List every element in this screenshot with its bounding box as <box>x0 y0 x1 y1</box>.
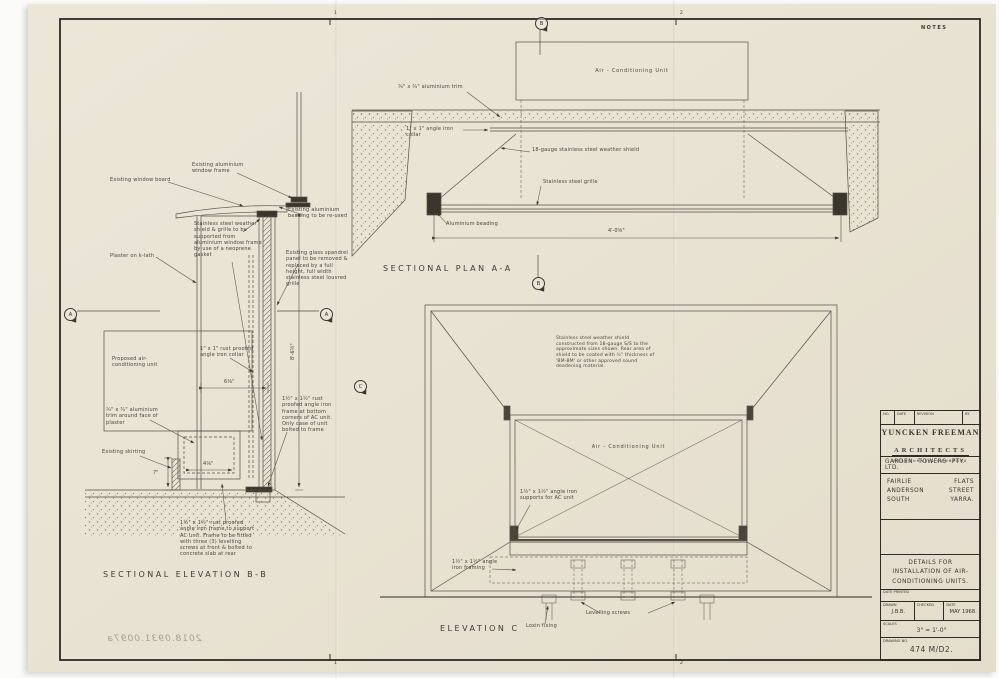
drawn-checked-date-row: DRAWNJ.B.B. CHECKED DATEMAY 1968. <box>881 602 980 621</box>
project-line: FLATS <box>954 479 974 485</box>
title-block: NO. DATE REVISION BY YUNCKEN FREEMAN ARC… <box>880 410 981 661</box>
border-tick-label: 1 <box>334 661 337 666</box>
dim-overall-height: 8'-6⅝" <box>290 343 296 360</box>
border-tick-label: 2 <box>680 661 683 666</box>
label-spandrel: Existing glass spandrel panel to be remo… <box>286 250 350 288</box>
catalogue-stamp: 2018.0931.0097a <box>84 634 224 644</box>
client-name: GARDEN TOWERS PTY. LTD. <box>881 457 980 474</box>
project-line: SOUTH <box>887 497 910 503</box>
drawing-number-row: DRAWING NO. 474 M/D2. <box>881 638 980 660</box>
label-plan-shield: 18-gauge stainless steel weather shield <box>532 147 662 153</box>
rev-col-no: NO. <box>881 411 895 424</box>
border-tick-label: 1 <box>334 11 337 16</box>
scales-label: SCALES <box>883 622 980 626</box>
label-angle-collar: 1" x 1" rust proofed angle iron collar <box>200 346 256 359</box>
section-marker-b-mid: B <box>532 277 545 290</box>
label-elevc-supports: 1½" x 1½" angle iron supports for AC uni… <box>520 489 578 502</box>
label-plan-ac-unit: Air - Conditioning Unit <box>516 68 748 74</box>
label-plan-collar: 1" x 1" angle iron collar <box>406 126 462 139</box>
title-sectional-plan-aa: SECTIONAL PLAN A-A <box>383 264 513 273</box>
project-line: ANDERSON <box>887 488 924 494</box>
date-printed-label: DATE PRINTED <box>881 590 980 602</box>
project-line: STREET <box>949 488 974 494</box>
date-label: DATE <box>946 603 980 607</box>
section-marker-a-right: A <box>320 308 333 321</box>
drawing-no-label: DRAWING NO. <box>883 639 980 643</box>
label-corner-angle: 1½" x 1½" rust proofed angle iron frame … <box>282 396 344 434</box>
section-marker-a-left: A <box>64 308 77 321</box>
label-weather-shield: Stainless steel weather shield & grille … <box>194 221 264 259</box>
label-proposed-unit: Proposed air-conditioning unit <box>112 356 168 369</box>
project-block: FAIRLIEFLATS ANDERSONSTREET SOUTHYARRA. <box>881 474 980 520</box>
revision-header-row: NO. DATE REVISION BY <box>881 411 980 425</box>
firm-name: YUNCKEN FREEMAN <box>881 428 980 437</box>
firm-block: YUNCKEN FREEMAN ARCHITECTS MELBOURNE & C… <box>881 425 980 457</box>
rev-col-date: DATE <box>895 411 915 424</box>
scales-row: SCALES 3" = 1'-0" <box>881 621 980 638</box>
drawing-no-value: 474 M/D2. <box>883 645 980 654</box>
scales-value: 3" = 1'-0" <box>883 627 980 634</box>
label-elevc-note: Stainless steel weather shield construct… <box>556 336 658 370</box>
section-marker-b-top: B <box>535 17 548 30</box>
label-skirting: Existing skirting <box>102 449 152 455</box>
title-elevation-c: ELEVATION C <box>440 624 520 633</box>
label-alum-trim: ¾" x ¾" aluminium trim around face of pl… <box>106 407 164 426</box>
label-plan-beading: Aluminium beading <box>446 221 516 227</box>
drawn-value: J.B.B. <box>883 609 914 615</box>
sectional-plan-aa-lines <box>352 30 880 256</box>
label-plan-grille: Stainless steel grille <box>543 179 623 185</box>
date-value: MAY 1968. <box>946 609 980 615</box>
scanned-drawing-sheet: NOTES 1 2 1 2 2018.0931.0097a A A C B B … <box>0 0 999 678</box>
label-support-frame: 1½" x 1½" rust proofed angle iron frame … <box>180 520 260 558</box>
label-elevc-loxin: Loxin fixing <box>526 623 570 629</box>
project-line: YARRA. <box>950 497 974 503</box>
firm-architects: ARCHITECTS <box>892 447 969 456</box>
checked-label: CHECKED <box>917 603 944 607</box>
dim-collar-width: 6⅛" <box>224 379 234 385</box>
label-elevc-levelling: Levelling screws <box>586 610 648 616</box>
drawn-label: DRAWN <box>883 603 914 607</box>
label-plan-trim: ¾" x ¾" aluminium trim <box>398 84 464 90</box>
border-tick-label: 2 <box>680 11 683 16</box>
project-line: FAIRLIE <box>887 479 912 485</box>
drawing-title: DETAILS FOR INSTALLATION OF AIR-CONDITIO… <box>881 554 980 590</box>
label-plaster: Plaster on k-lath <box>110 253 170 259</box>
label-window-frame: Existing aluminium window frame <box>192 162 250 175</box>
dim-plan-width: 4'-0⅝" <box>608 228 625 234</box>
sectional-elevation-bb-lines <box>77 92 538 537</box>
rev-col-by: BY <box>963 411 980 424</box>
title-block-spacer <box>881 520 980 554</box>
label-window-board: Existing window board <box>110 177 180 183</box>
label-beading-reused: Existing aluminium beading to be re-used <box>288 207 348 220</box>
view-marker-c: C <box>354 380 367 393</box>
dim-skirt: 7" <box>153 470 158 476</box>
label-elevc-ac-unit: Air - Conditioning Unit <box>510 444 747 450</box>
dim-plinth: 4⅛" <box>203 461 213 467</box>
rev-col-revision: REVISION <box>915 411 964 424</box>
notes-heading: NOTES <box>921 25 947 31</box>
label-elevc-framing: 1½" x 1½" angle iron framing <box>452 559 504 572</box>
title-sectional-elevation-bb: SECTIONAL ELEVATION B-B <box>103 570 268 579</box>
